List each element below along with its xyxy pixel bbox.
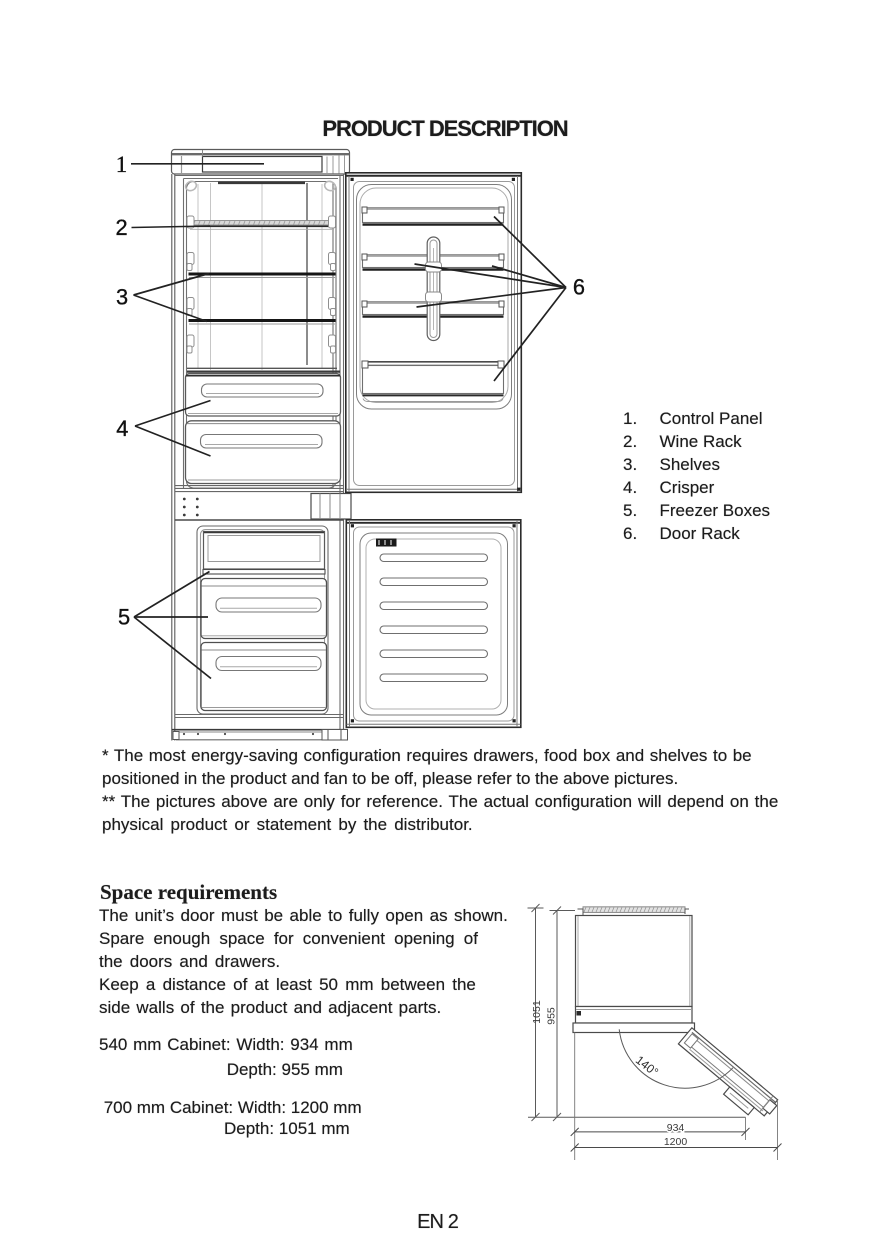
svg-text:1051: 1051: [531, 1000, 543, 1024]
svg-text:1200: 1200: [664, 1136, 688, 1148]
svg-text:934: 934: [667, 1122, 685, 1134]
svg-text:955: 955: [546, 1007, 558, 1025]
svg-text:2: 2: [115, 215, 127, 240]
svg-text:4: 4: [116, 416, 128, 441]
svg-text:6: 6: [573, 274, 585, 299]
svg-text:140°: 140°: [633, 1053, 661, 1079]
svg-text:5: 5: [118, 605, 130, 630]
svg-text:3: 3: [116, 285, 128, 310]
svg-text:1: 1: [116, 152, 128, 177]
